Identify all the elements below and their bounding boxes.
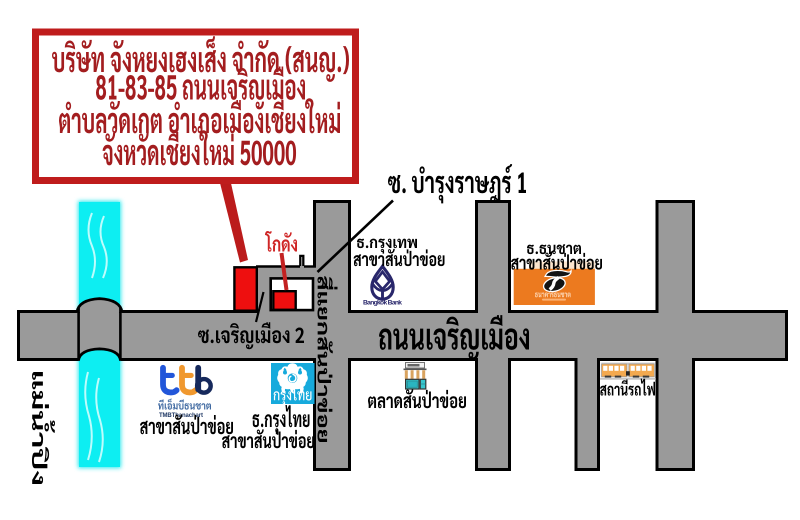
svg-text:Bangkok Bank: Bangkok Bank — [363, 300, 402, 307]
